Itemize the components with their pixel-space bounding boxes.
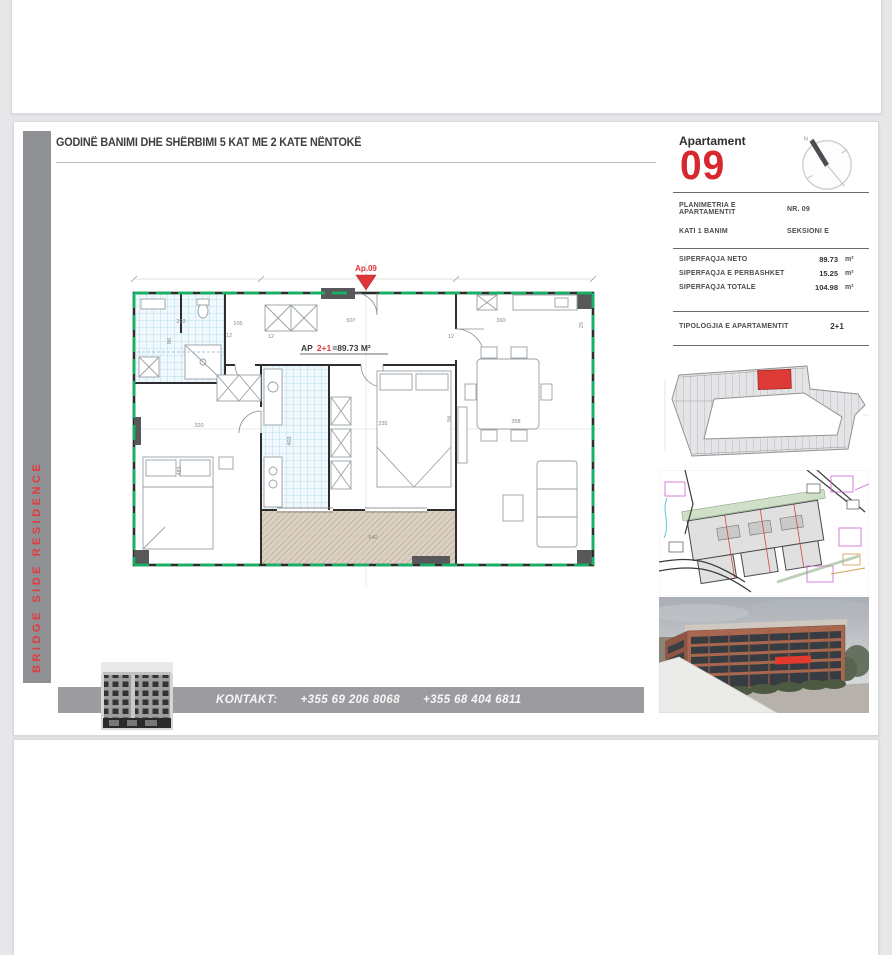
plan-dimension-label: 94: [447, 416, 453, 422]
info-row-kati: KATI 1 BANIM SEKSIONI E: [679, 220, 869, 242]
plan-dimension-label: 12: [448, 334, 454, 340]
area-value: 89.73: [798, 255, 838, 264]
sheet-title: GODINË BANIMI DHE SHËRBIMI 5 KAT ME 2 KA…: [56, 137, 620, 149]
area-unit: m²: [838, 256, 869, 263]
bedroom2-furniture: [331, 371, 451, 489]
plan-dimension-label: 25: [579, 322, 585, 328]
plan-dimension-label: 507: [346, 318, 355, 324]
compass-icon: N: [796, 132, 858, 194]
area-row-neto: SIPERFAQJA NETO 89.73 m²: [679, 252, 869, 266]
area-unit: m²: [838, 284, 869, 291]
surface-area-rows: SIPERFAQJA NETO 89.73 m² SIPERFAQJA E PE…: [679, 252, 869, 294]
apartment-number: 09: [680, 142, 725, 189]
area-unit: m²: [838, 270, 869, 277]
unit-area-type: 2+1: [317, 343, 332, 353]
contact-phone-1: +355 69 206 8068: [301, 694, 400, 706]
info-label: KATI 1 BANIM: [679, 228, 787, 235]
info-value: NR. 09: [787, 206, 869, 213]
apartment-marker-arrow-icon: [356, 275, 376, 290]
building-render-image: [659, 597, 869, 713]
plan-dimension-label: 86: [167, 338, 173, 344]
site-map-image: [659, 470, 869, 596]
area-label: SIPERFAQJA TOTALE: [679, 284, 798, 291]
unit-area-label: AP2+1=89.73 M²: [301, 343, 371, 353]
bedroom1-furniture: [143, 375, 261, 549]
plan-dimension-label: 403: [287, 436, 293, 445]
plan-dimension-label: 483: [177, 466, 183, 475]
plan-dimension-label: 203: [176, 319, 185, 325]
area-value: 15.25: [798, 269, 838, 278]
contact-label: KONTAKT:: [216, 694, 278, 706]
panel-divider-4: [673, 345, 869, 346]
area-row-totale: SIPERFAQJA TOTALE 104.98 m²: [679, 280, 869, 294]
apartment-info-rows: PLANIMETRIA E APARTAMENTIT NR. 09 KATI 1…: [679, 198, 869, 242]
building-key-plan-image: [659, 355, 869, 467]
plan-dimension-label: 360: [496, 318, 505, 324]
unit-area-value: =89.73 M²: [332, 343, 371, 353]
typology-label: TIPOLOGJIA E APARTAMENTIT: [679, 323, 805, 330]
pdf-viewport: BRIDGE SIDE RESIDENCE GODINË BANIMI DHE …: [0, 0, 892, 950]
title-divider: [56, 162, 656, 163]
info-label: PLANIMETRIA E APARTAMENTIT: [679, 202, 787, 216]
info-row-planimetria: PLANIMETRIA E APARTAMENTIT NR. 09: [679, 198, 869, 220]
plan-dimension-label: 358: [511, 419, 520, 425]
plan-dimension-label: 335: [378, 421, 387, 427]
apartment-marker-label: Ap.09: [355, 264, 377, 273]
panel-divider-1: [673, 192, 869, 193]
hall-wardrobe: [265, 305, 317, 331]
area-label: SIPERFAQJA NETO: [679, 256, 798, 263]
info-value: SEKSIONI E: [787, 228, 869, 235]
plan-dimension-label: 540: [368, 535, 377, 541]
brand-vertical-text: BRIDGE SIDE RESIDENCE: [23, 373, 51, 673]
highlighted-unit: [758, 369, 792, 389]
contact-phone-2: +355 68 404 6811: [423, 694, 522, 706]
plan-sheet-page: BRIDGE SIDE RESIDENCE GODINË BANIMI DHE …: [13, 121, 879, 736]
typology-value: 2+1: [805, 322, 869, 331]
panel-divider-3: [673, 311, 869, 312]
render-highlighted-unit: [775, 656, 811, 665]
typology-row: TIPOLOGJIA E APARTAMENTIT 2+1: [679, 322, 869, 331]
plan-dimension-label: 12: [226, 333, 232, 339]
panel-divider-2: [673, 248, 869, 249]
compass-north-label: N: [804, 137, 808, 143]
area-label: SIPERFAQJA E PERBASHKET: [679, 270, 798, 277]
area-value: 104.98: [798, 283, 838, 292]
floor-plan-svg: AP2+1=89.73 M² Ap.09 2031055073608612121…: [125, 257, 605, 589]
next-page-fragment: [13, 739, 879, 955]
plan-dimension-label: 12: [268, 334, 274, 340]
building-photo-thumbnail: [101, 662, 173, 730]
plan-dimension-label: 105: [233, 321, 242, 327]
area-row-perbashket: SIPERFAQJA E PERBASHKET 15.25 m²: [679, 266, 869, 280]
brand-sidebar: BRIDGE SIDE RESIDENCE: [23, 131, 51, 683]
plan-dimension-label: 320: [194, 423, 203, 429]
unit-area-prefix: AP: [301, 343, 313, 353]
previous-page-fragment: [11, 0, 882, 114]
